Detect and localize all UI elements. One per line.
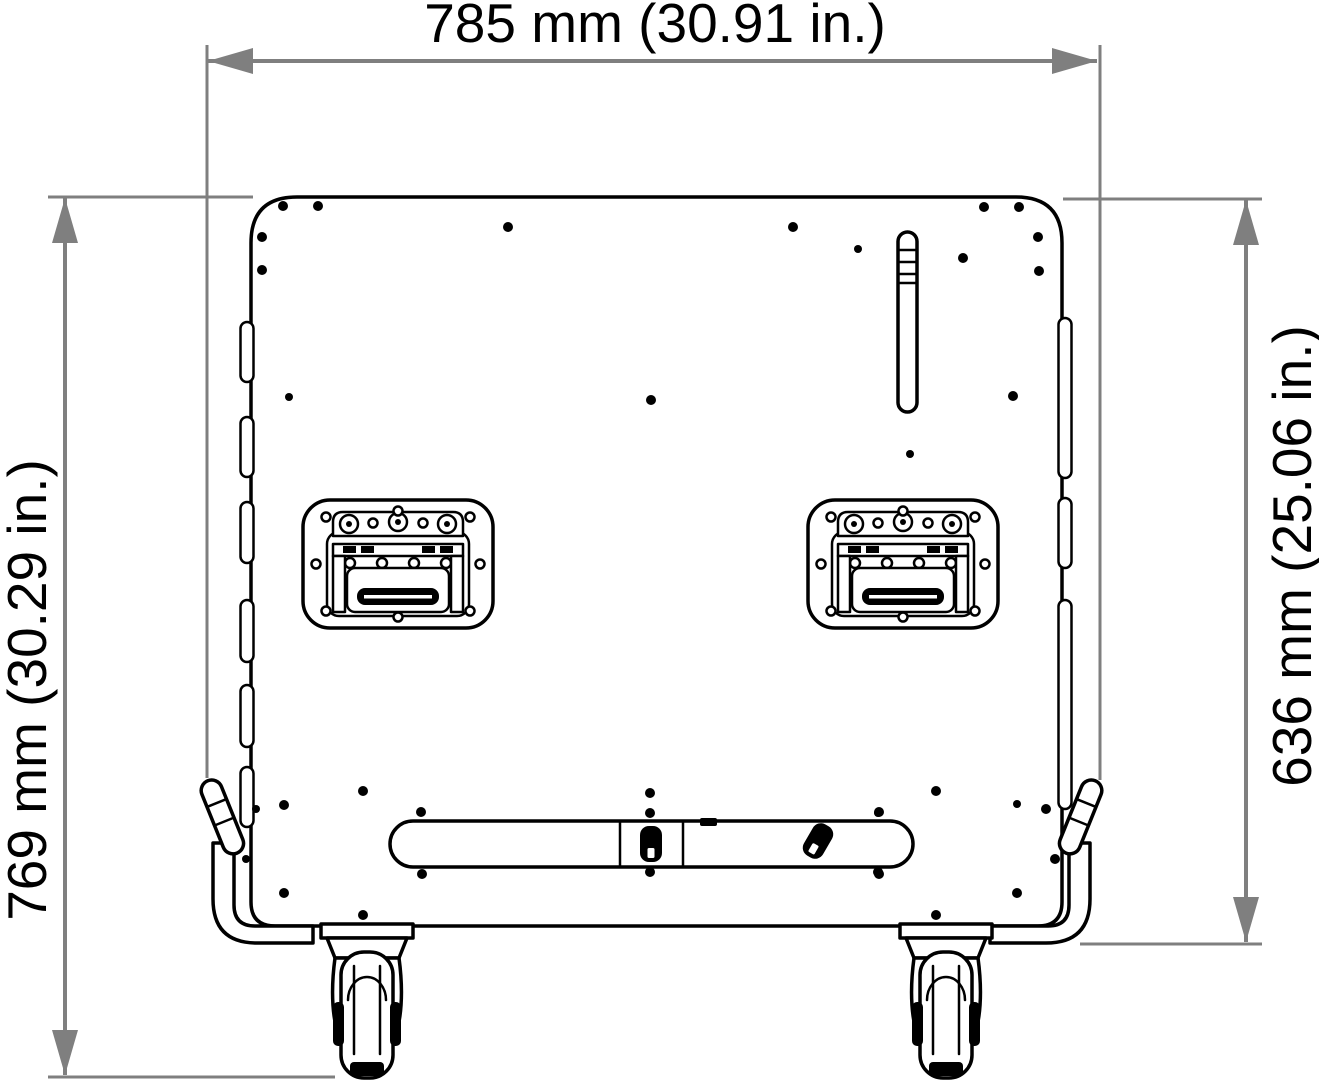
latch-lock-center [640,826,662,862]
latch-hasp [700,818,717,826]
recessed-handle-right [808,500,998,628]
arrowhead-up-icon [52,198,78,243]
caster-right [900,924,992,1078]
edge-ridges-right [1059,318,1072,809]
overall-height-dimension-label: 769 mm (30.29 in.) [0,459,58,921]
arrowhead-down-icon [52,1030,78,1075]
case-height-dimension-label: 636 mm (25.06 in.) [1261,325,1319,787]
arrowhead-left-icon [208,48,253,74]
recessed-handle-left [303,500,493,628]
bottom-latch-rail [390,818,913,867]
case-dimension-drawing: 785 mm (30.91 in.) 769 mm (30.29 in.) 63… [0,0,1319,1080]
width-dimension-label: 785 mm (30.91 in.) [424,0,886,54]
arrowhead-up-icon [1233,200,1259,245]
arrowhead-right-icon [1052,48,1097,74]
telescopic-handle-slot [898,232,917,412]
arrowhead-down-icon [1233,897,1259,942]
technical-drawing-canvas: 785 mm (30.91 in.) 769 mm (30.29 in.) 63… [0,0,1319,1080]
caster-left [321,924,413,1078]
